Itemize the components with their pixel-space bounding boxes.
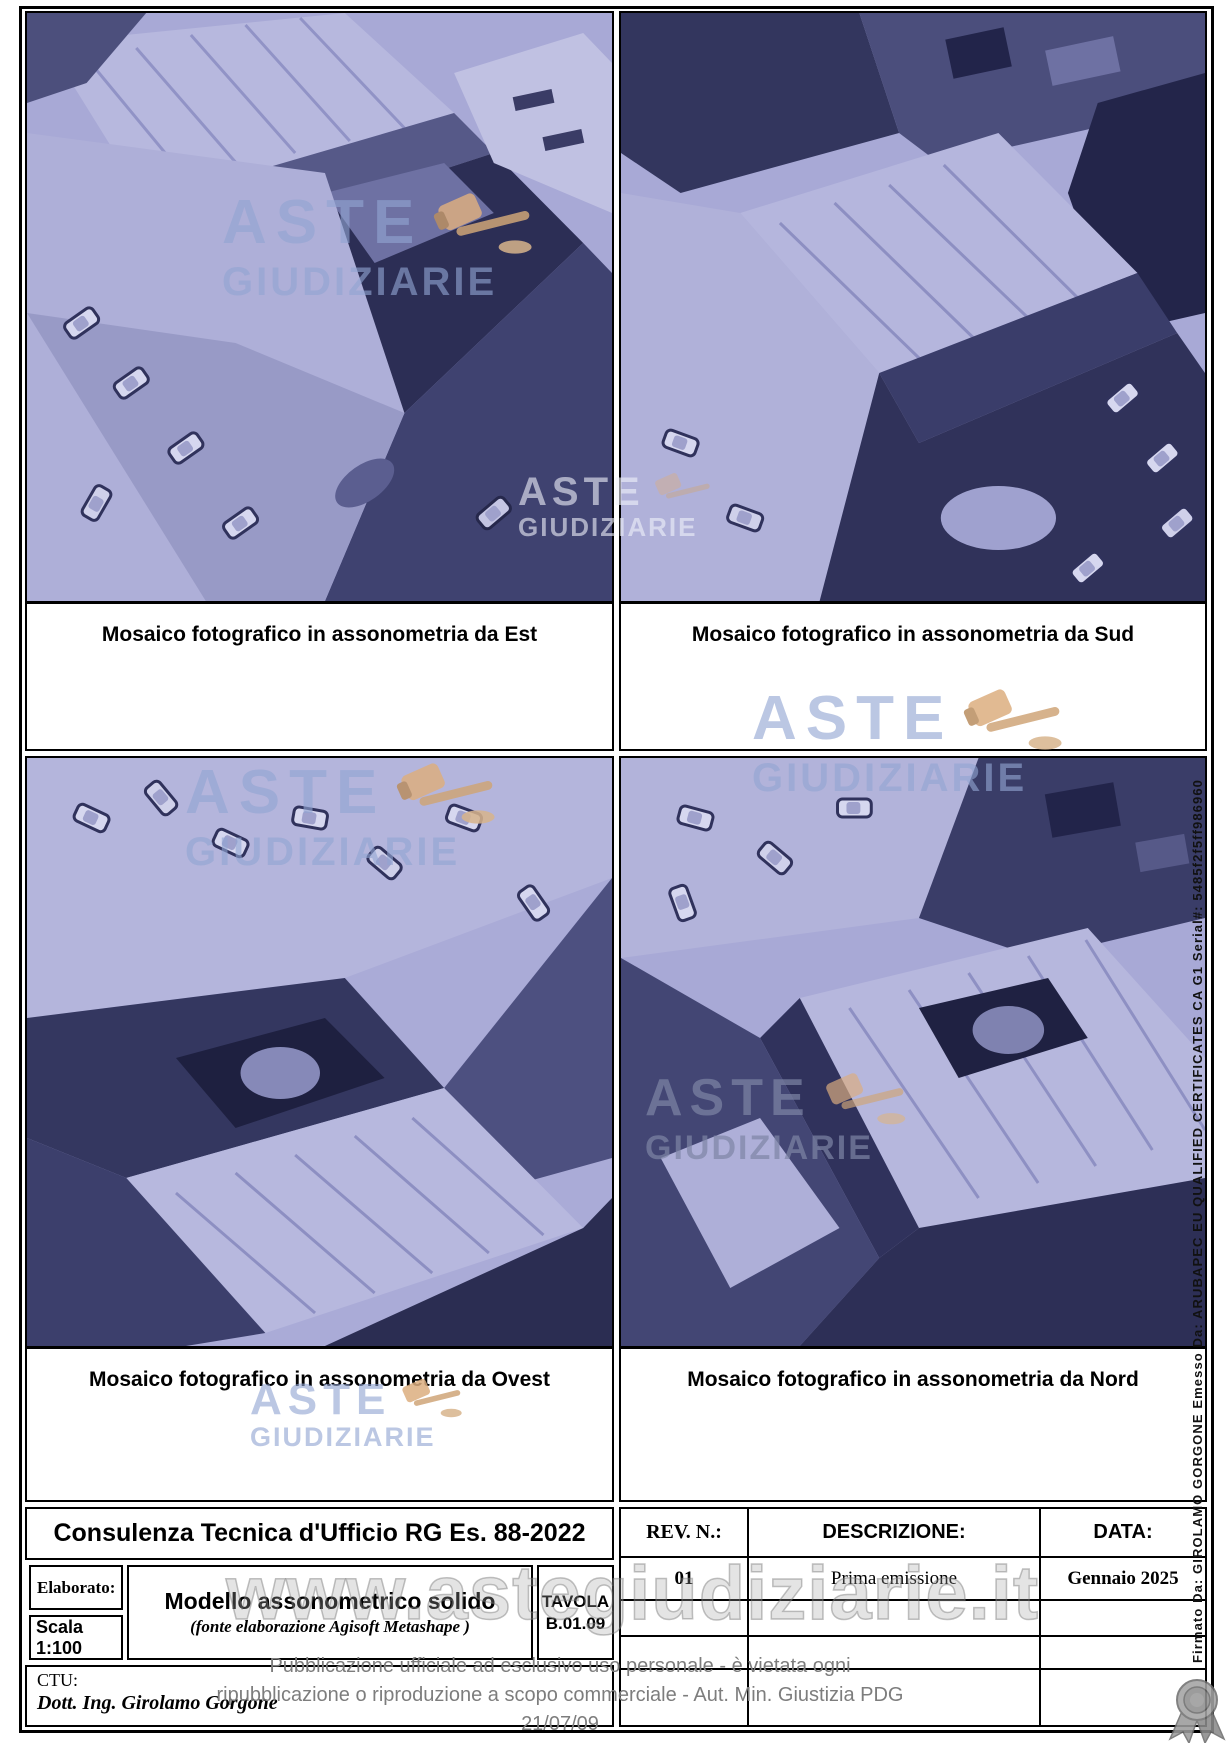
- photomosaic-sud: [621, 13, 1205, 601]
- digital-signature-text: Firmato Da: GIROLAMO GORGONE Emesso Da: …: [1190, 668, 1205, 1663]
- rev-row-description: [749, 1670, 1041, 1725]
- ctu-label: CTU:: [37, 1670, 612, 1691]
- photomosaic-ovest: [27, 758, 612, 1346]
- tavola-number: B.01.09: [546, 1613, 606, 1635]
- rev-row-number: [621, 1601, 749, 1637]
- rev-row-number: [621, 1637, 749, 1670]
- rev-row-date: Gennaio 2025: [1041, 1558, 1205, 1601]
- drawing-subtitle: (fonte elaborazione Agisoft Metashape ): [190, 1617, 470, 1637]
- panel-sud: Mosaico fotografico in assonometria da S…: [619, 11, 1207, 751]
- ctu-name: Dott. Ing. Girolamo Gorgone: [37, 1692, 612, 1715]
- rev-row-description: [749, 1601, 1041, 1637]
- rev-row-number: [621, 1670, 749, 1725]
- rev-row-description: Prima emissione: [749, 1558, 1041, 1601]
- revision-table: REV. N.: DESCRIZIONE: DATA: 01 Prima emi…: [619, 1507, 1207, 1727]
- panel-ovest: Mosaico fotografico in assonometria da O…: [25, 756, 614, 1502]
- ctu-box: CTU: Dott. Ing. Girolamo Gorgone: [25, 1665, 614, 1727]
- panel-sud-caption: Mosaico fotografico in assonometria da S…: [621, 623, 1205, 647]
- panel-nord-image: [621, 758, 1205, 1349]
- drawing-title-box: Modello assonometrico solido (fonte elab…: [127, 1565, 533, 1660]
- tavola-box: TAVOLA B.01.09: [537, 1565, 614, 1660]
- photomosaic-est: [27, 13, 612, 601]
- document-sheet: Mosaico fotografico in assonometria da E…: [0, 0, 1232, 1743]
- rev-header-number: REV. N.:: [621, 1509, 749, 1558]
- drawing-title: Modello assonometrico solido: [165, 1588, 496, 1615]
- panel-nord-caption: Mosaico fotografico in assonometria da N…: [621, 1368, 1205, 1392]
- rev-row-date: [1041, 1637, 1205, 1670]
- elaborato-label: Elaborato:: [29, 1565, 123, 1610]
- panel-nord: Mosaico fotografico in assonometria da N…: [619, 756, 1207, 1502]
- project-title: Consulenza Tecnica d'Ufficio RG Es. 88-2…: [25, 1507, 614, 1560]
- panel-ovest-image: [27, 758, 612, 1349]
- tavola-label: TAVOLA: [542, 1591, 609, 1613]
- rev-row-description: [749, 1637, 1041, 1670]
- panel-est-image: [27, 13, 612, 604]
- scale-value: Scala 1:100: [29, 1615, 123, 1660]
- rev-row-date: [1041, 1601, 1205, 1637]
- panel-est: Mosaico fotografico in assonometria da E…: [25, 11, 614, 751]
- rev-header-date: DATA:: [1041, 1509, 1205, 1558]
- panel-est-caption: Mosaico fotografico in assonometria da E…: [27, 623, 612, 647]
- seal-ribbon-icon: [1168, 1677, 1226, 1743]
- photomosaic-nord: [621, 758, 1205, 1346]
- panel-sud-image: [621, 13, 1205, 604]
- rev-row-number: 01: [621, 1558, 749, 1601]
- rev-header-description: DESCRIZIONE:: [749, 1509, 1041, 1558]
- panel-ovest-caption: Mosaico fotografico in assonometria da O…: [27, 1368, 612, 1392]
